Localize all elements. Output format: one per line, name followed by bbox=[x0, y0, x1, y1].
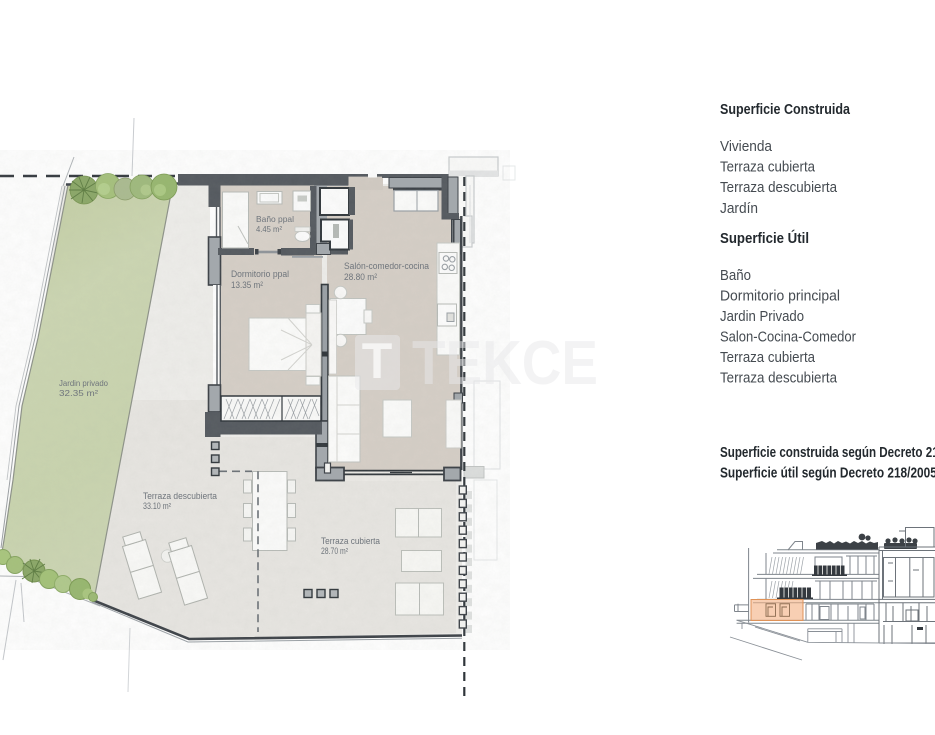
svg-text:Dormitorio principal: Dormitorio principal bbox=[720, 289, 840, 305]
svg-text:Terraza cubierta: Terraza cubierta bbox=[720, 160, 816, 176]
svg-text:Jardin privado: Jardin privado bbox=[59, 378, 108, 388]
svg-text:Superficie Construida: Superficie Construida bbox=[720, 102, 851, 118]
svg-text:Terraza descubierta: Terraza descubierta bbox=[720, 371, 838, 387]
svg-text:Dormitorio ppal: Dormitorio ppal bbox=[231, 269, 289, 280]
svg-text:28.80 m²: 28.80 m² bbox=[344, 272, 378, 283]
svg-text:Terraza cubierta: Terraza cubierta bbox=[720, 350, 816, 366]
svg-text:32.35 m²: 32.35 m² bbox=[59, 388, 98, 398]
svg-text:28.70 m²: 28.70 m² bbox=[321, 546, 348, 556]
svg-text:Superficie Útil: Superficie Útil bbox=[720, 229, 809, 247]
svg-text:Jardín: Jardín bbox=[720, 201, 758, 217]
svg-text:TEKCE: TEKCE bbox=[412, 329, 598, 398]
svg-text:Salon-Cocina-Comedor: Salon-Cocina-Comedor bbox=[720, 330, 856, 346]
svg-text:Terraza descubierta: Terraza descubierta bbox=[720, 180, 838, 196]
svg-text:Jardin Privado: Jardin Privado bbox=[720, 309, 804, 325]
svg-text:33.10 m²: 33.10 m² bbox=[143, 501, 171, 511]
svg-text:Terraza descubierta: Terraza descubierta bbox=[143, 491, 217, 501]
svg-text:Baño ppal: Baño ppal bbox=[256, 214, 294, 224]
svg-text:Superficie útil según Decreto: Superficie útil según Decreto 218/2005, … bbox=[720, 465, 935, 482]
svg-text:Terraza cubierta: Terraza cubierta bbox=[321, 536, 380, 546]
svg-text:Baño: Baño bbox=[720, 268, 751, 284]
svg-text:Superficie construida según De: Superficie construida según Decreto 218/… bbox=[720, 444, 935, 461]
svg-text:Vivienda: Vivienda bbox=[720, 139, 773, 155]
svg-text:4.45 m²: 4.45 m² bbox=[256, 224, 282, 234]
svg-text:T: T bbox=[362, 333, 393, 389]
svg-text:13.35 m²: 13.35 m² bbox=[231, 280, 264, 291]
svg-text:Salón-comedor-cocina: Salón-comedor-cocina bbox=[344, 261, 430, 272]
